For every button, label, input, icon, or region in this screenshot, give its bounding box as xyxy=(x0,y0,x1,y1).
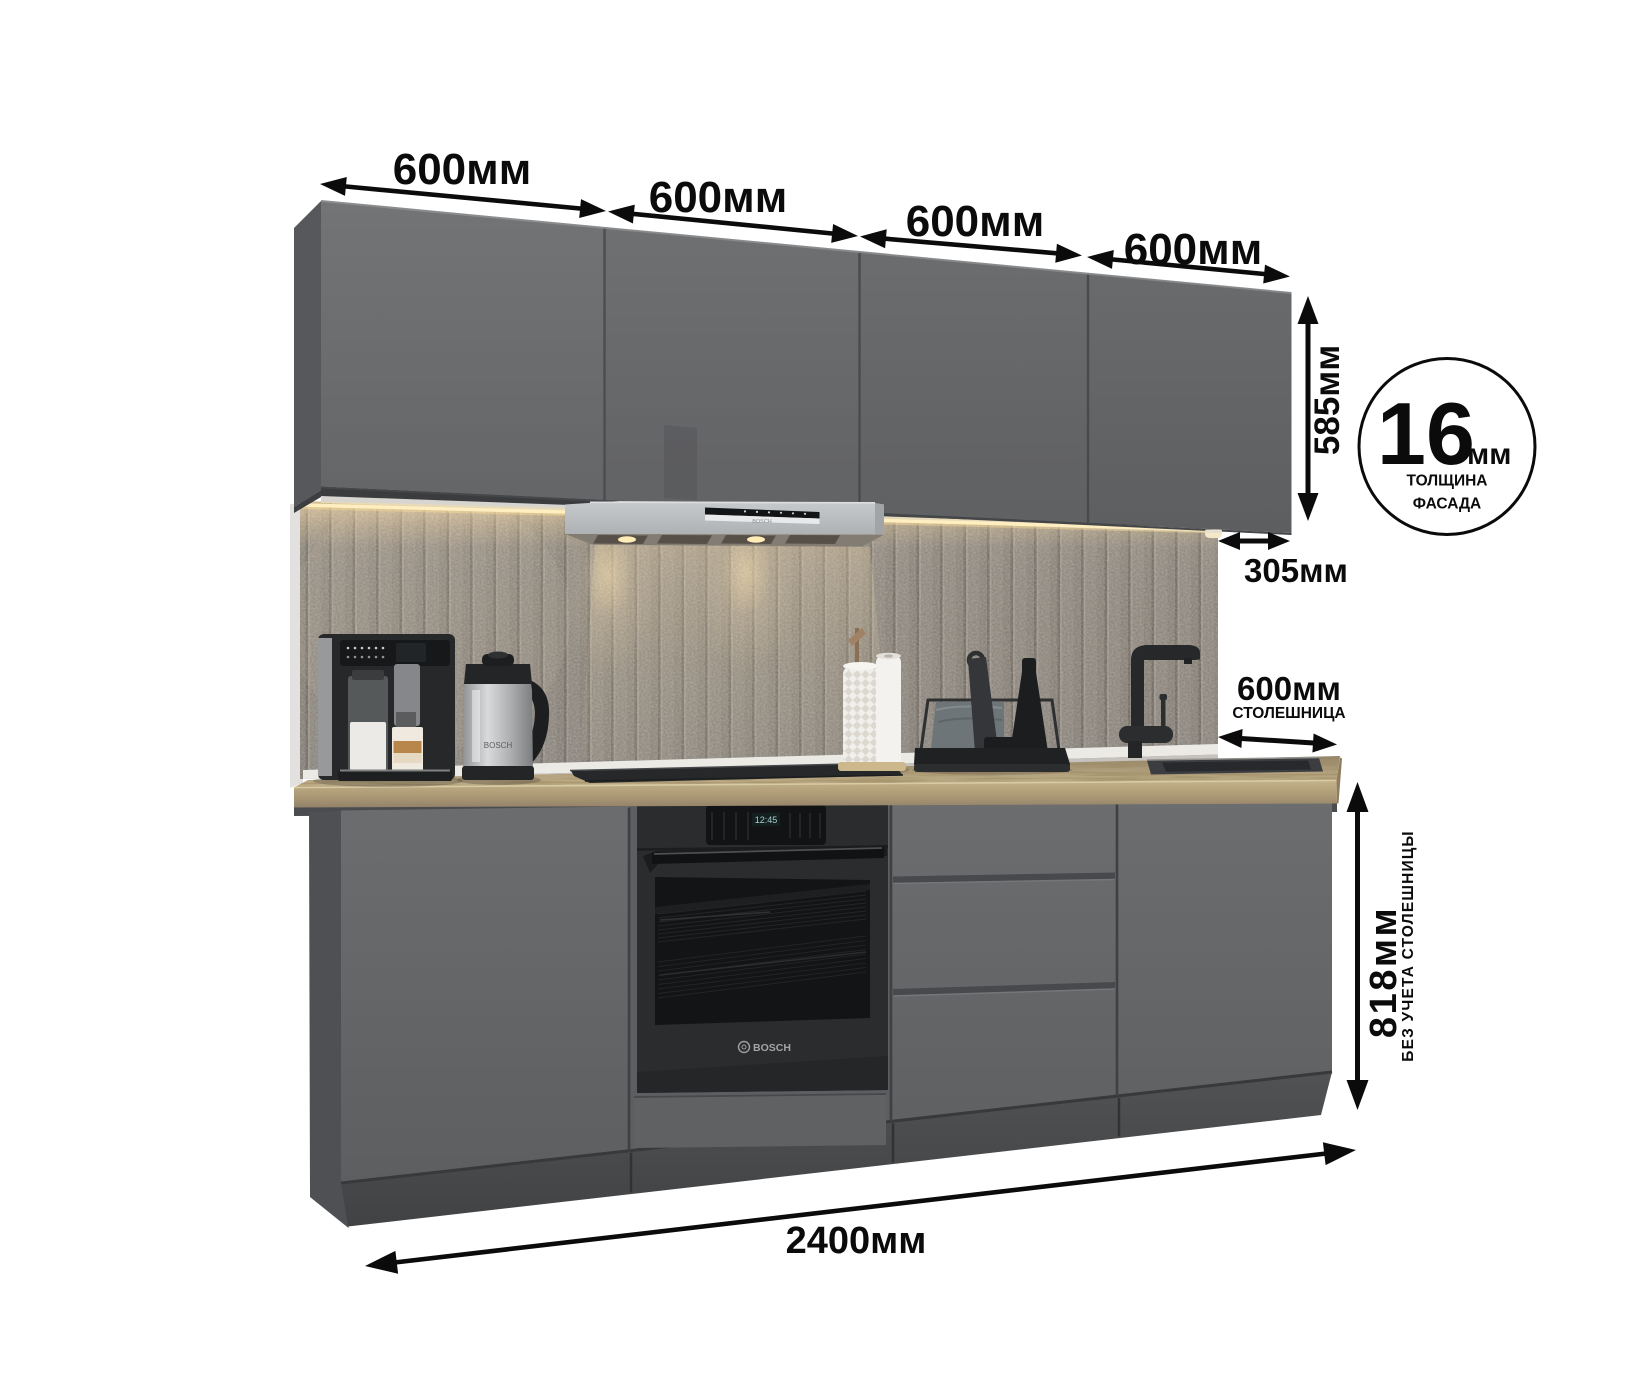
svg-text:мм: мм xyxy=(1467,438,1511,471)
svg-text:БЕЗ УЧЕТА СТОЛЕШНИЦЫ: БЕЗ УЧЕТА СТОЛЕШНИЦЫ xyxy=(1400,830,1417,1062)
svg-text:ФАСАДА: ФАСАДА xyxy=(1413,496,1481,513)
svg-text:BOSCH: BOSCH xyxy=(752,519,772,525)
svg-text:BOSCH: BOSCH xyxy=(753,1042,791,1054)
svg-text:600мм: 600мм xyxy=(906,197,1045,246)
svg-text:16: 16 xyxy=(1377,384,1475,483)
svg-text:600мм: 600мм xyxy=(393,145,532,194)
svg-text:305мм: 305мм xyxy=(1244,552,1348,589)
svg-text:600мм: 600мм xyxy=(1237,670,1341,707)
svg-text:2400мм: 2400мм xyxy=(786,1220,927,1262)
svg-text:818мм: 818мм xyxy=(1363,906,1405,1038)
svg-text:12:45: 12:45 xyxy=(755,815,778,825)
svg-text:СТОЛЕШНИЦА: СТОЛЕШНИЦА xyxy=(1232,705,1345,722)
svg-text:585мм: 585мм xyxy=(1308,345,1347,455)
svg-text:ТОЛЩИНА: ТОЛЩИНА xyxy=(1407,473,1488,490)
svg-text:BOSCH: BOSCH xyxy=(484,741,513,750)
svg-text:600мм: 600мм xyxy=(1124,225,1263,274)
svg-text:600мм: 600мм xyxy=(649,173,788,222)
